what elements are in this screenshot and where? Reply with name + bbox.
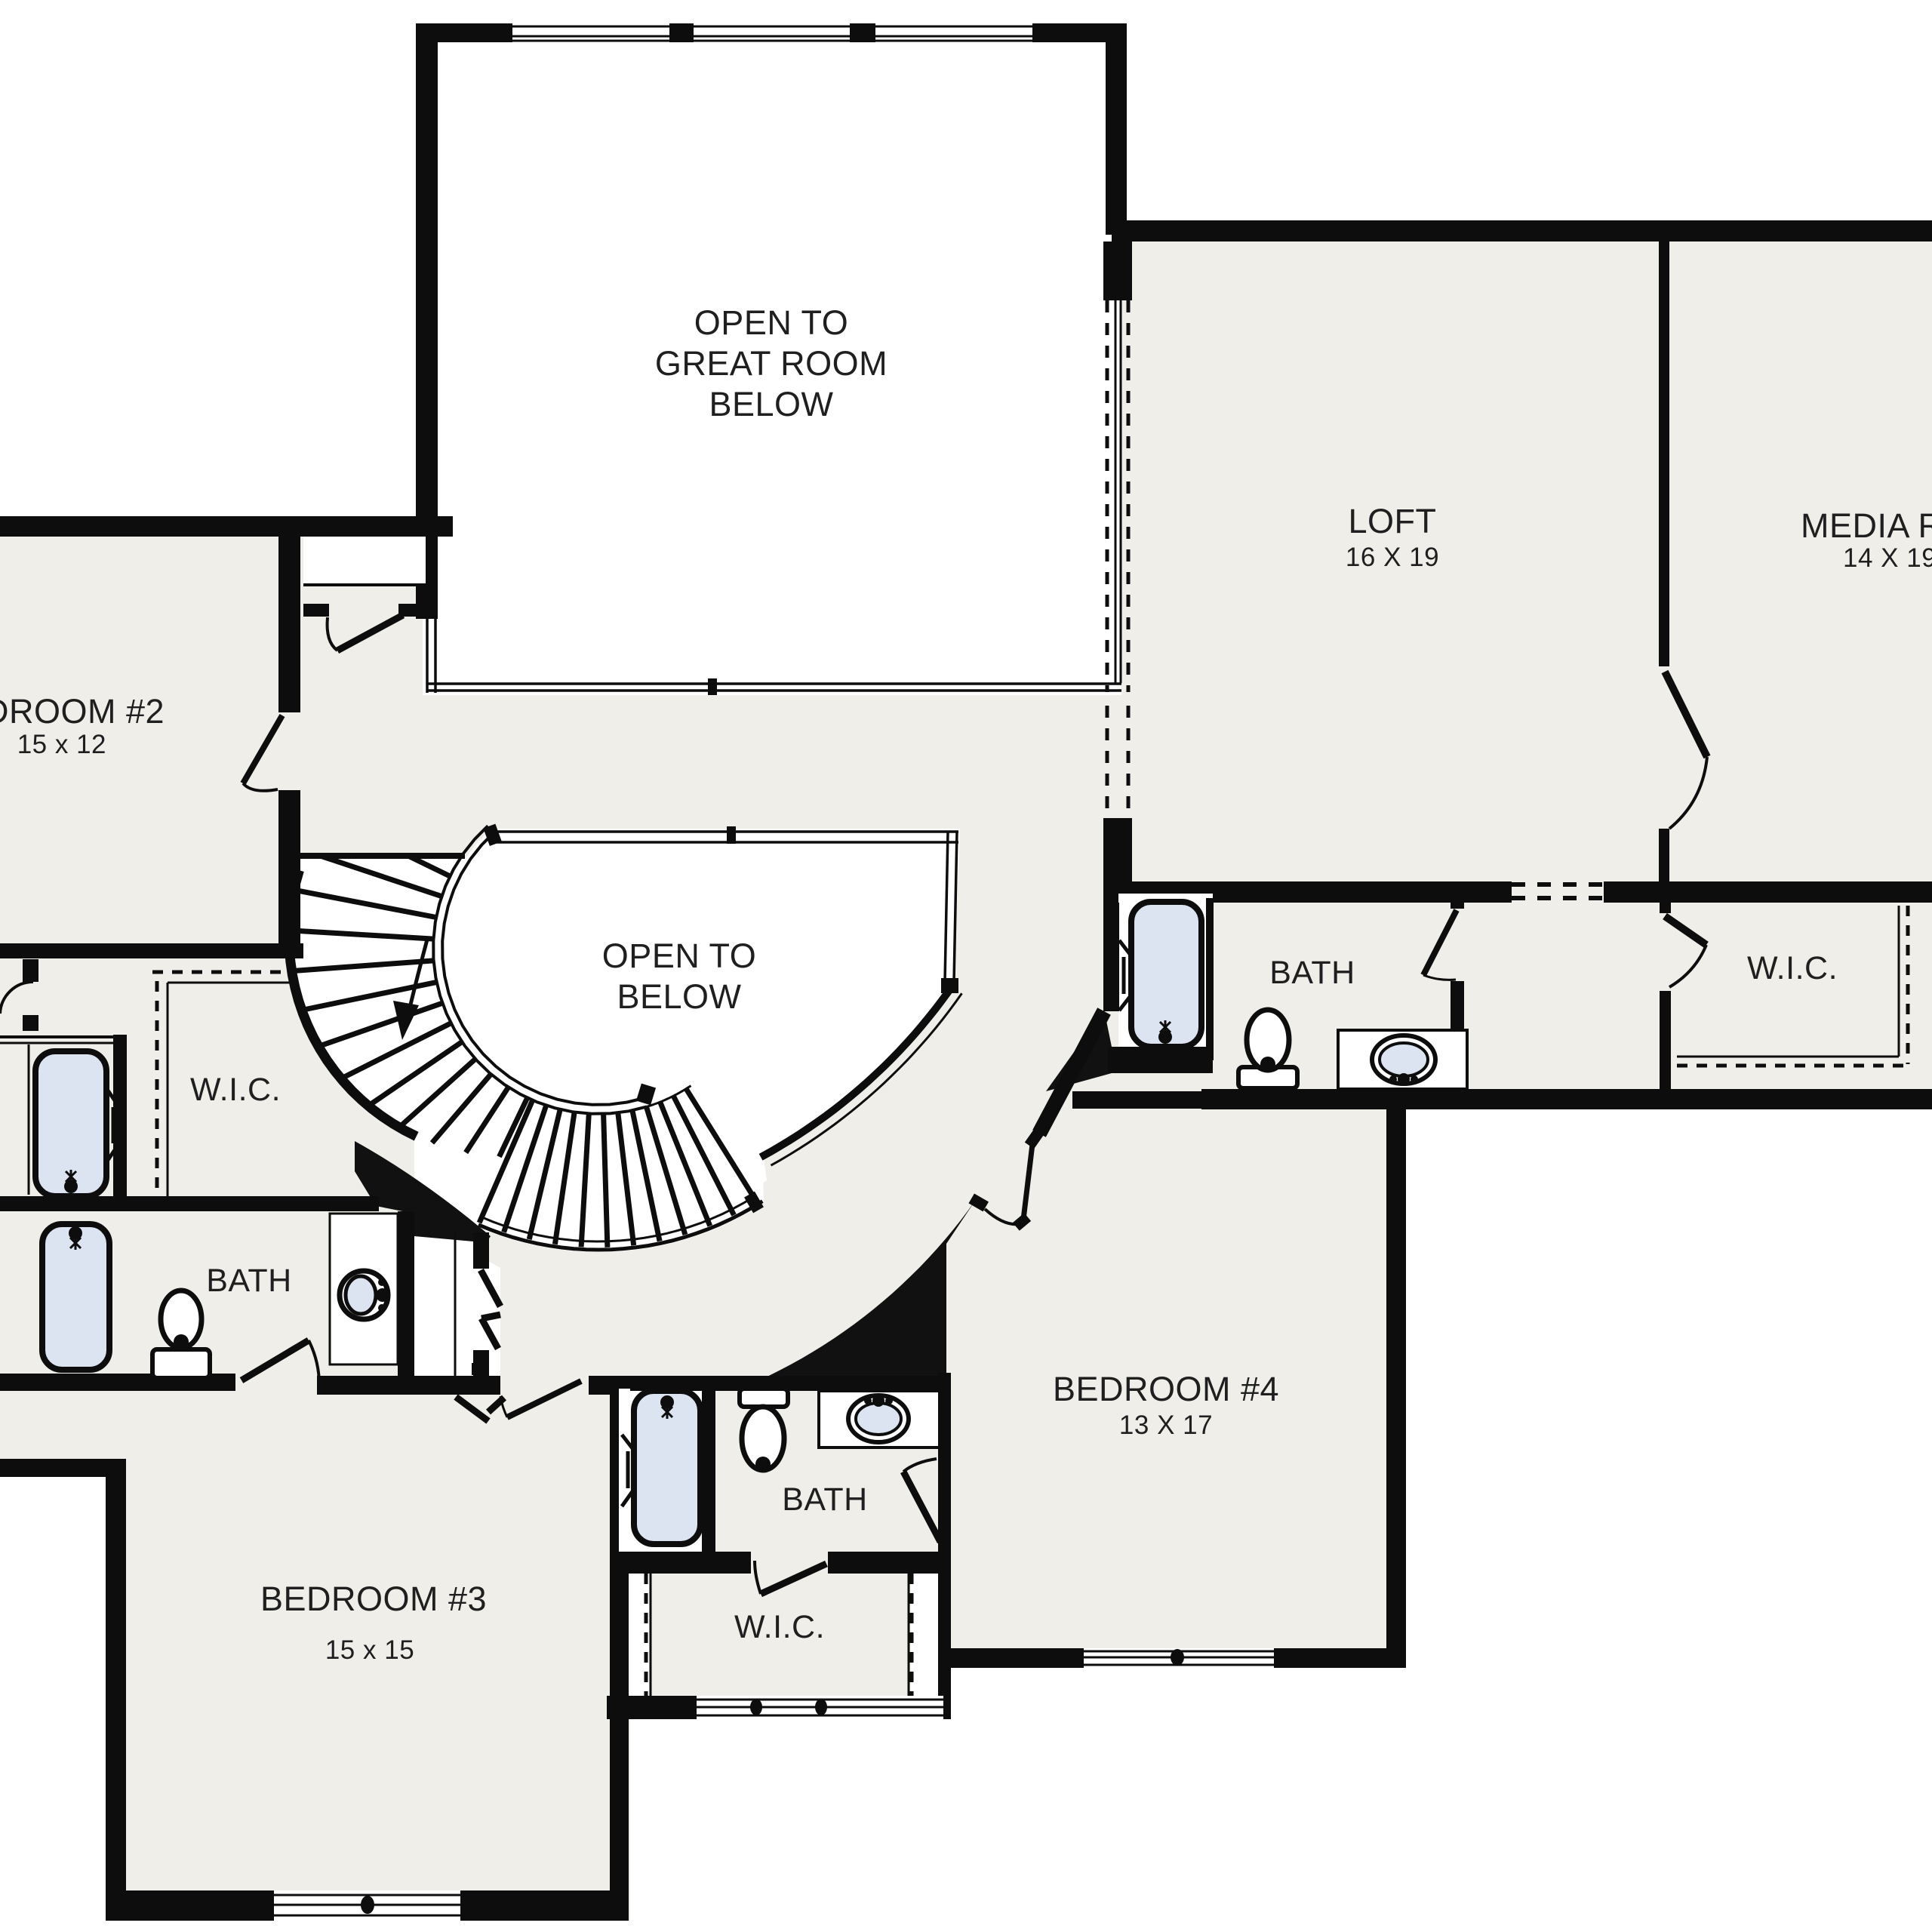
svg-text:BATH: BATH — [1269, 955, 1355, 991]
svg-text:BEDROOM #4: BEDROOM #4 — [1053, 1370, 1279, 1408]
svg-text:W.I.C.: W.I.C. — [190, 1072, 281, 1108]
svg-text:MEDIA ROOM: MEDIA ROOM — [1801, 506, 1932, 545]
svg-text:BEDROOM #3: BEDROOM #3 — [260, 1580, 487, 1618]
svg-text:BELOW: BELOW — [617, 977, 741, 1016]
svg-text:16 X 19: 16 X 19 — [1346, 543, 1439, 572]
svg-text:OPEN TO: OPEN TO — [602, 937, 756, 975]
svg-text:OPEN TO: OPEN TO — [694, 303, 848, 342]
svg-text:14 X 19: 14 X 19 — [1843, 543, 1932, 573]
svg-text:GREAT ROOM: GREAT ROOM — [655, 344, 888, 383]
svg-text:LOFT: LOFT — [1348, 502, 1436, 540]
svg-text:15 x 15: 15 x 15 — [325, 1635, 414, 1665]
svg-text:W.I.C.: W.I.C. — [1747, 950, 1838, 986]
svg-text:BATH: BATH — [782, 1481, 868, 1518]
svg-text:BATH: BATH — [206, 1263, 292, 1299]
svg-text:W.I.C.: W.I.C. — [734, 1609, 825, 1645]
svg-text:BEDROOM #2: BEDROOM #2 — [0, 692, 165, 731]
svg-text:15 x 12: 15 x 12 — [17, 730, 106, 759]
svg-text:BELOW: BELOW — [709, 385, 833, 423]
svg-text:13 X 17: 13 X 17 — [1119, 1411, 1213, 1440]
